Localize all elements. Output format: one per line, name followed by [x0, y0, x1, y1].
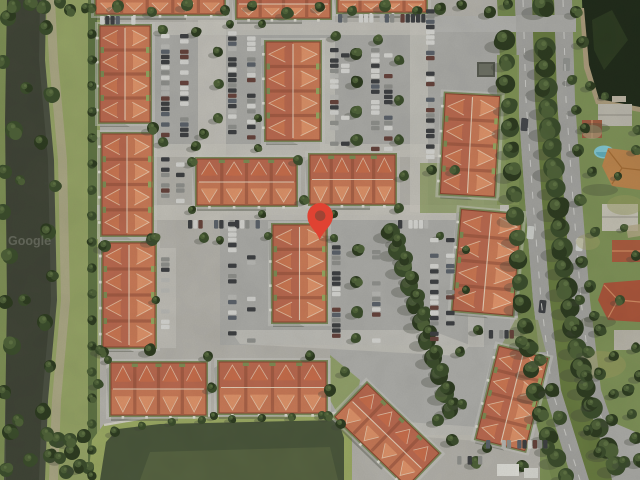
svg-text:Google: Google [8, 234, 51, 248]
